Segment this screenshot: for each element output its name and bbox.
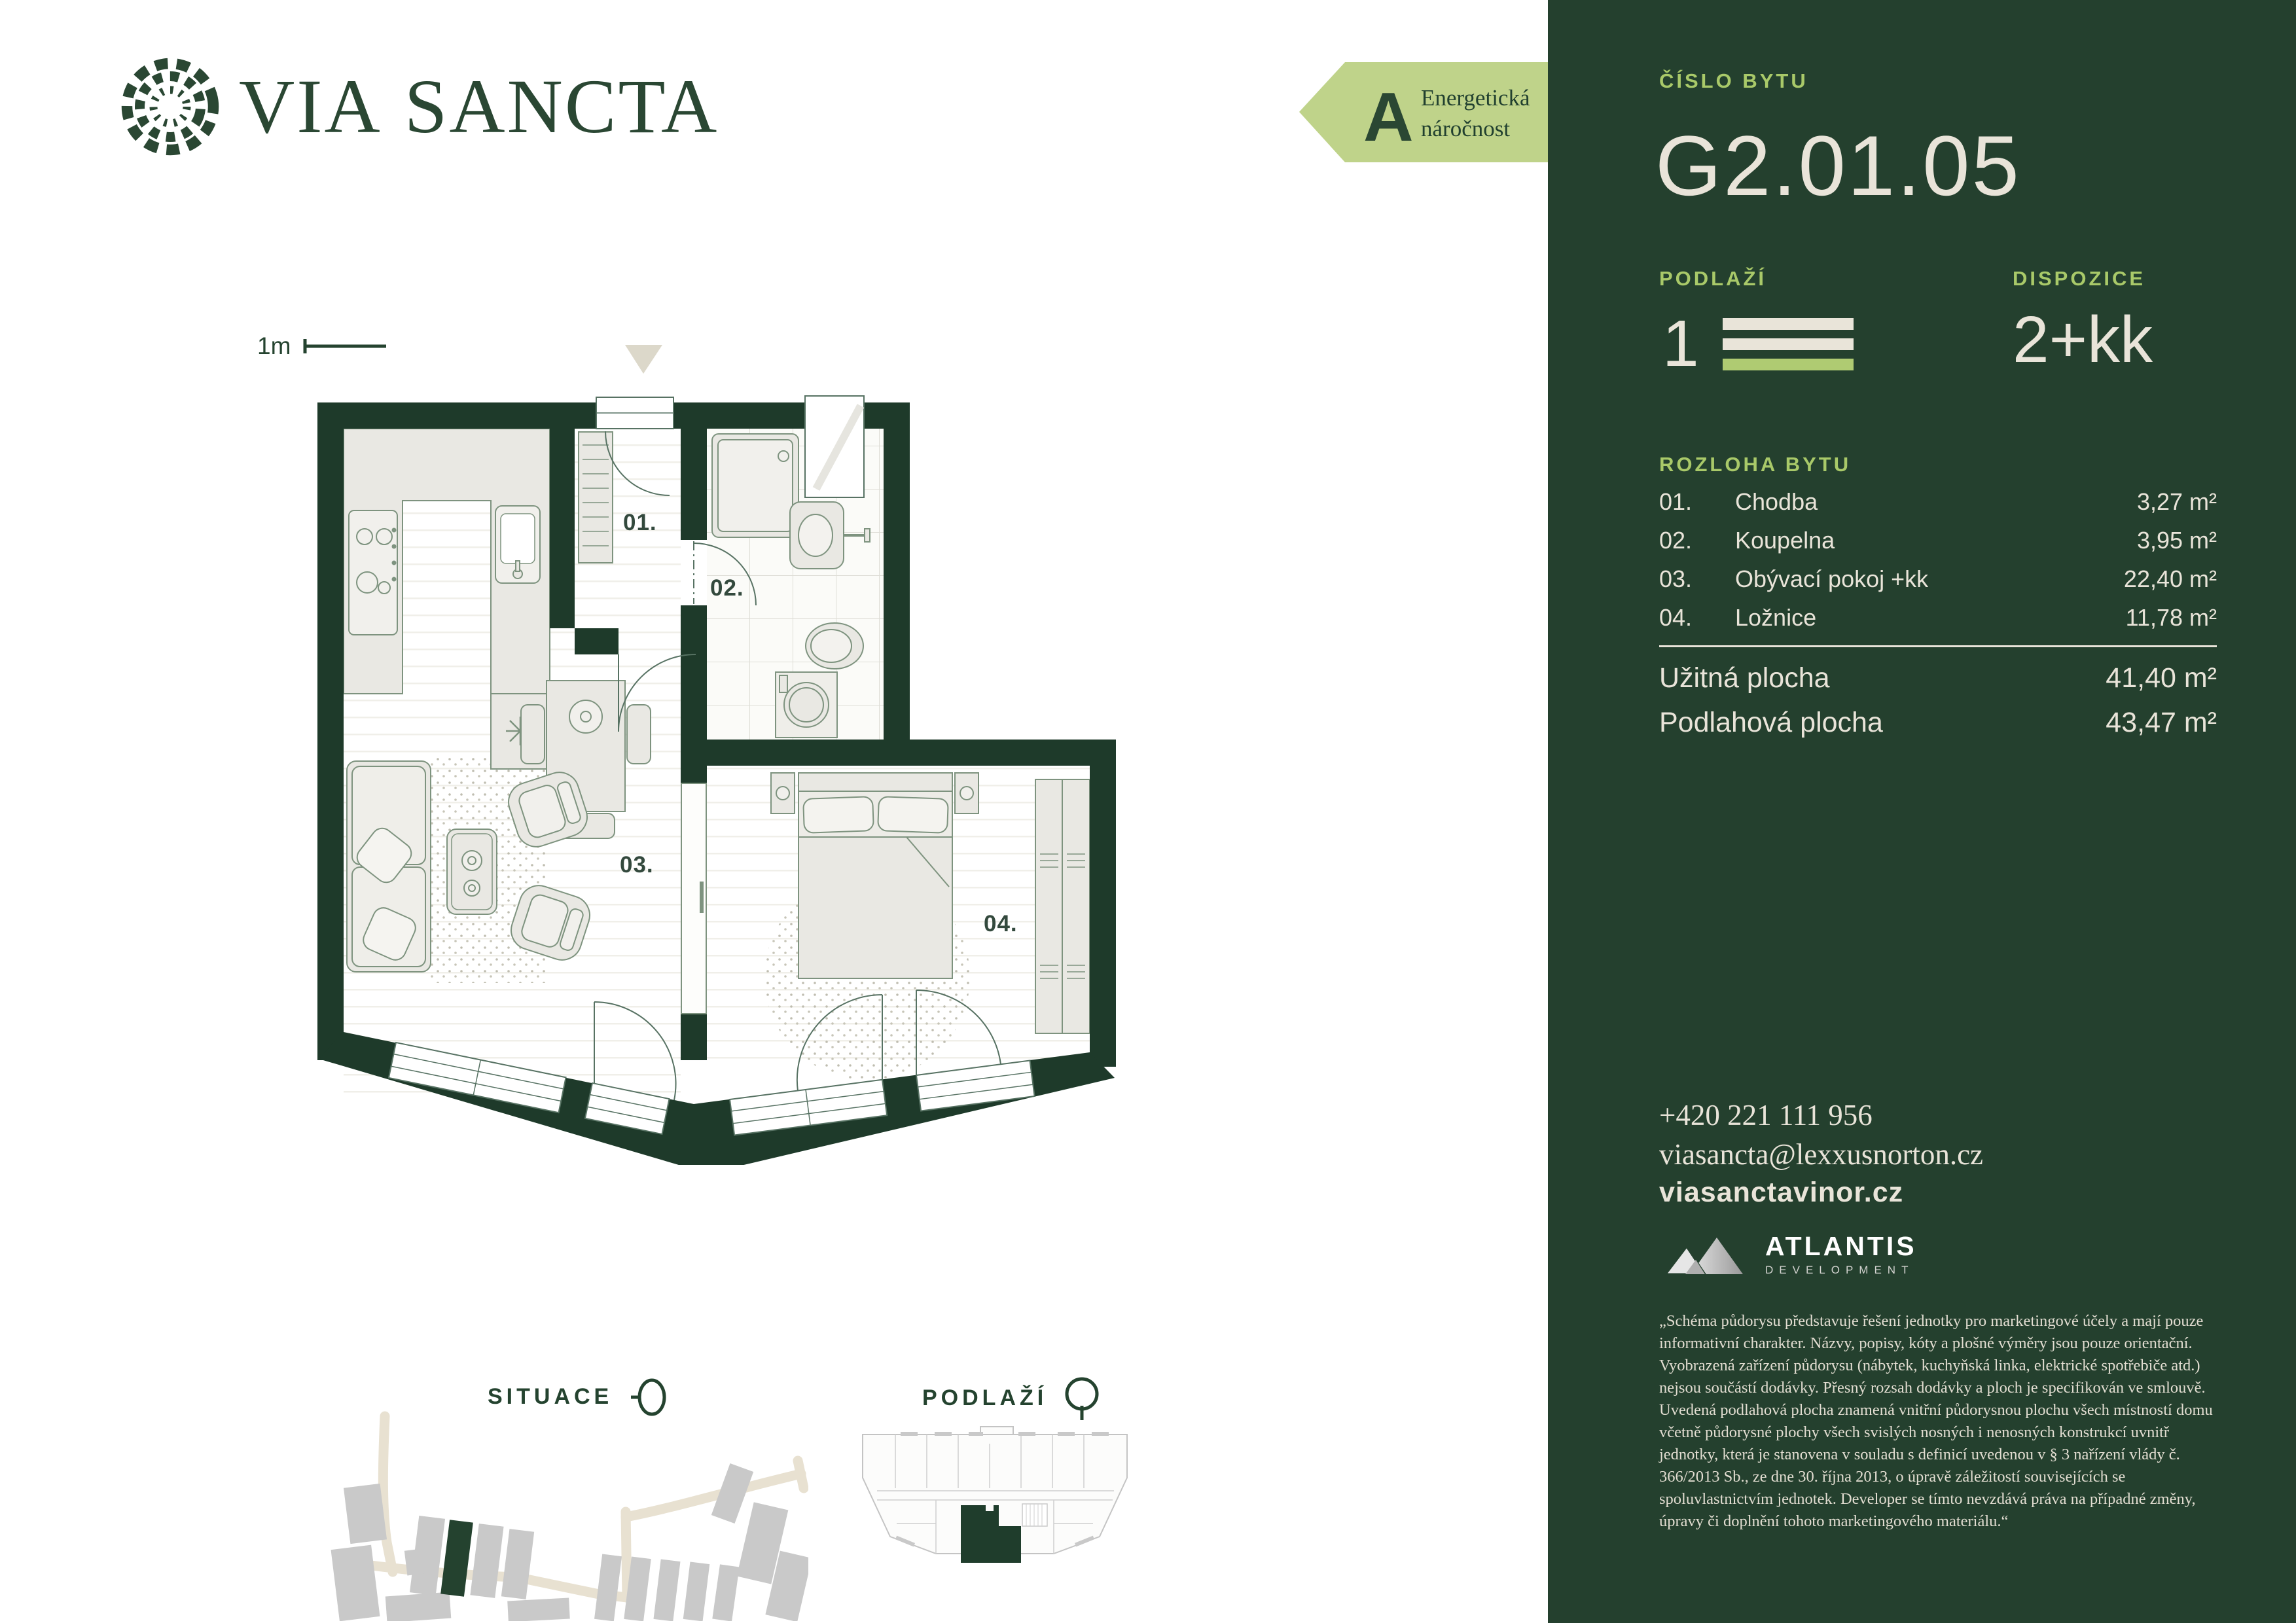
floor-area-row: Podlahová plocha 43,47 m²: [1659, 707, 2217, 739]
podlazi-map: [857, 1425, 1132, 1579]
situace-highlighted-building: [440, 1520, 473, 1597]
room-index: 04.: [1659, 604, 1735, 632]
room-label-02: 02.: [710, 575, 744, 601]
usable-area-label: Užitná plocha: [1659, 662, 2106, 694]
podlazi-title: PODLAŽÍ: [922, 1385, 1047, 1411]
window: [916, 1060, 1035, 1111]
room-area: 11,78 m²: [2126, 604, 2217, 632]
room-index: 02.: [1659, 527, 1735, 554]
layout-value: 2+kk: [2013, 302, 2153, 378]
bathroom-window: [805, 396, 864, 497]
area-section-label: ROZLOHA BYTU: [1659, 453, 1851, 476]
room-row: 01. Chodba 3,27 m²: [1659, 488, 2217, 516]
room-area: 22,40 m²: [2124, 565, 2217, 593]
usable-area-value: 41,40 m²: [2106, 662, 2217, 694]
kitchen-sink: [495, 506, 540, 583]
wardrobe: [1035, 779, 1090, 1033]
table-divider: [1659, 645, 2217, 647]
bed: [771, 773, 978, 978]
floor-value: 1: [1662, 306, 1699, 382]
unit-number-label: ČÍSLO BYTU: [1659, 69, 1808, 93]
energy-line2: náročnost: [1421, 116, 1510, 141]
situace-map: [321, 1408, 808, 1621]
energy-arrow-shape: [1299, 62, 1550, 162]
legal-disclaimer: „Schéma půdorysu představuje řešení jedn…: [1659, 1310, 2219, 1533]
contact-website: viasanctavinor.cz: [1659, 1177, 1903, 1209]
room-index: 03.: [1659, 565, 1735, 593]
scale-label: 1m: [257, 332, 291, 360]
developer-subtitle: DEVELOPMENT: [1765, 1264, 1917, 1277]
room-label-03: 03.: [620, 852, 654, 878]
developer-name: ATLANTIS: [1765, 1233, 1917, 1260]
developer-logo: ATLANTIS DEVELOPMENT: [1659, 1233, 1917, 1277]
compass-icon: [1063, 1373, 1101, 1423]
floor-value-row: 1: [1662, 306, 1854, 382]
brand-via: VIA: [239, 63, 382, 149]
energy-grade: A: [1363, 79, 1414, 156]
washing-machine: [776, 672, 837, 738]
info-panel: ČÍSLO BYTU G2.01.05 PODLAŽÍ DISPOZICE 1 …: [1548, 0, 2296, 1623]
buildings: [331, 1463, 808, 1621]
usable-area-row: Užitná plocha 41,40 m²: [1659, 662, 2217, 694]
mountain-icon: [1659, 1235, 1757, 1277]
room-index: 01.: [1659, 488, 1735, 516]
situace-title: SITUACE: [488, 1384, 613, 1410]
floor-bar: [1723, 318, 1854, 330]
room-area: 3,27 m²: [2137, 488, 2217, 516]
floor-area-value: 43,47 m²: [2106, 707, 2217, 739]
room-row: 04. Ložnice 11,78 m²: [1659, 604, 2217, 632]
room-name: Chodba: [1735, 488, 2137, 516]
developer-text: ATLANTIS DEVELOPMENT: [1765, 1233, 1917, 1277]
podlazi-title-row: PODLAŽÍ: [922, 1373, 1101, 1423]
room-label-04: 04.: [984, 911, 1018, 936]
floor-level-icon: [1723, 318, 1854, 370]
room-label-01: 01.: [623, 510, 657, 535]
stairwell-hatch: [1022, 1504, 1047, 1526]
sliding-door: [681, 783, 706, 1014]
hall-wardrobe: [579, 432, 613, 563]
shower: [712, 434, 798, 537]
sofa: [347, 761, 431, 972]
brand-logo-text: VIASANCTA: [239, 62, 719, 151]
toilet: [806, 623, 863, 669]
unit-door-notch: [986, 1505, 994, 1511]
contact-phone: +420 221 111 956: [1659, 1098, 1873, 1132]
layout-label: DISPOZICE: [2013, 267, 2145, 291]
energy-line1: Energetická: [1421, 85, 1530, 111]
room-name: Koupelna: [1735, 527, 2137, 554]
floor-bar: [1723, 338, 1854, 350]
entrance-arrow: [625, 345, 662, 374]
energy-label: A Energetická náročnost: [1299, 62, 1550, 166]
brand-logo-icon: [121, 58, 219, 156]
floor-bar-active: [1723, 359, 1854, 370]
room-row: 03. Obývací pokoj +kk 22,40 m²: [1659, 565, 2217, 593]
floor-label: PODLAŽÍ: [1659, 267, 1767, 291]
room-row: 02. Koupelna 3,95 m²: [1659, 527, 2217, 554]
room-name: Ložnice: [1735, 604, 2126, 632]
room-name: Obývací pokoj +kk: [1735, 565, 2124, 593]
brand-sancta: SANCTA: [404, 63, 719, 149]
floor-plan: 01. 02. 03. 04.: [317, 340, 1149, 1165]
unit-number: G2.01.05: [1655, 116, 2021, 215]
coffee-table: [447, 829, 497, 914]
room-area: 3,95 m²: [2137, 527, 2217, 554]
brand-logo: VIASANCTA: [121, 58, 719, 156]
floor-area-label: Podlahová plocha: [1659, 707, 2106, 739]
contact-email: viasancta@lexxusnorton.cz: [1659, 1137, 1983, 1171]
stove: [349, 510, 397, 635]
